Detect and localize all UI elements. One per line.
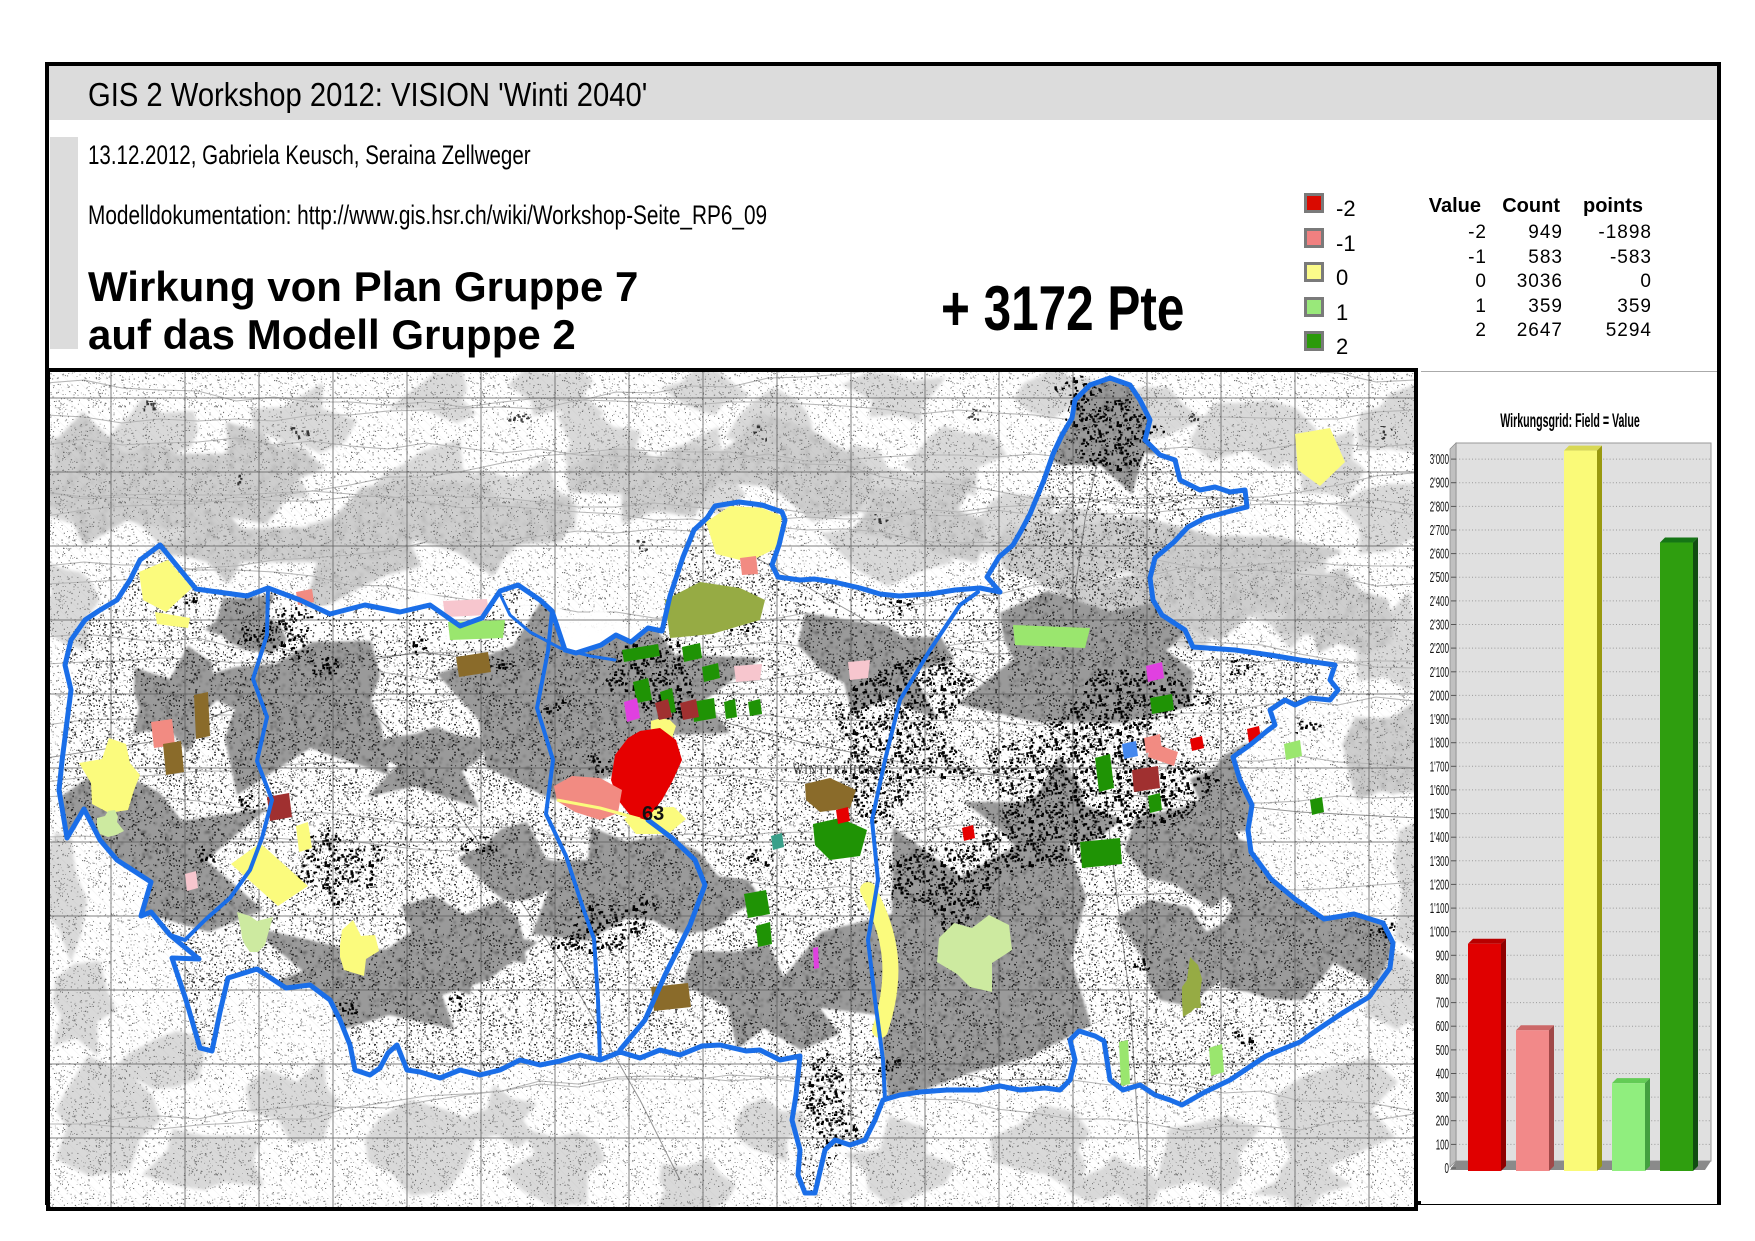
svg-text:1'600: 1'600 [1430,783,1450,799]
svg-text:700: 700 [1436,995,1450,1011]
svg-text:63: 63 [642,803,664,825]
svg-text:1'700: 1'700 [1430,759,1450,775]
svg-text:300: 300 [1436,1090,1450,1106]
svg-text:2'300: 2'300 [1430,617,1450,633]
svg-text:500: 500 [1436,1043,1450,1059]
svg-text:1'100: 1'100 [1430,901,1450,917]
svg-text:1'300: 1'300 [1430,853,1450,869]
svg-text:3'000: 3'000 [1430,452,1450,468]
svg-text:400: 400 [1436,1066,1450,1082]
svg-text:2'700: 2'700 [1430,523,1450,539]
svg-text:1'400: 1'400 [1430,830,1450,846]
svg-text:2'200: 2'200 [1430,641,1450,657]
svg-text:2'400: 2'400 [1430,594,1450,610]
svg-text:Wirkungsgrid: Field = Value: Wirkungsgrid: Field = Value [1500,411,1640,432]
svg-text:200: 200 [1436,1113,1450,1129]
svg-text:1'900: 1'900 [1430,712,1450,728]
svg-text:600: 600 [1436,1019,1450,1035]
svg-text:1'500: 1'500 [1430,806,1450,822]
svg-text:2'000: 2'000 [1430,688,1450,704]
svg-text:2'100: 2'100 [1430,664,1450,680]
svg-text:2'800: 2'800 [1430,499,1450,515]
svg-text:0: 0 [1445,1161,1450,1177]
svg-text:900: 900 [1436,948,1450,964]
svg-text:WINTERTHUR: WINTERTHUR [793,762,875,777]
svg-text:800: 800 [1436,972,1450,988]
svg-text:2'600: 2'600 [1430,546,1450,562]
svg-text:2'900: 2'900 [1430,475,1450,491]
svg-text:1'000: 1'000 [1430,924,1450,940]
svg-text:1'200: 1'200 [1430,877,1450,893]
svg-text:1'800: 1'800 [1430,735,1450,751]
svg-text:100: 100 [1436,1137,1450,1153]
svg-text:2'500: 2'500 [1430,570,1450,586]
